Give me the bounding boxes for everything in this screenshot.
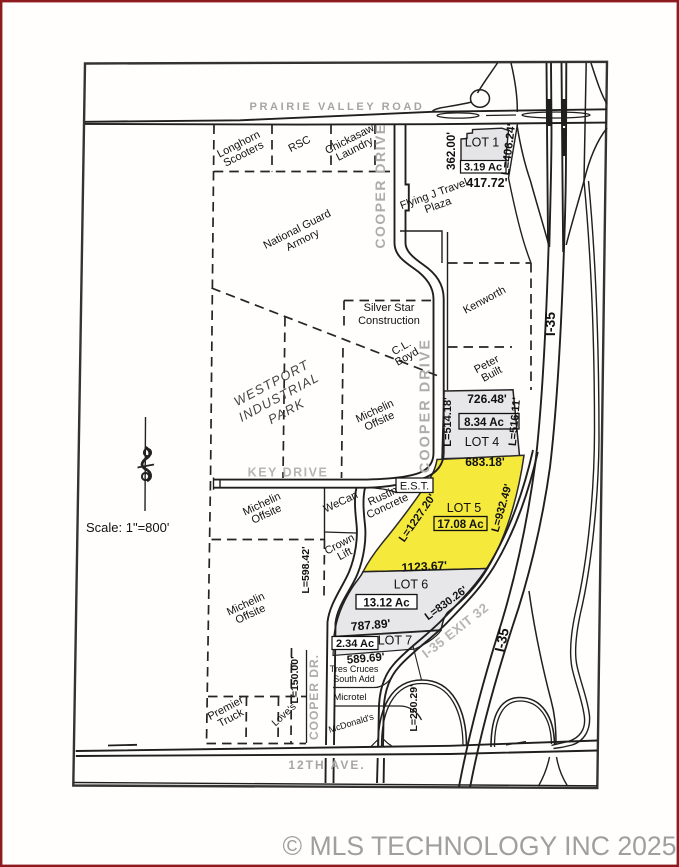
- svg-text:LOT 6: LOT 6: [394, 578, 429, 592]
- svg-text:PRAIRIE VALLEY ROAD: PRAIRIE VALLEY ROAD: [250, 101, 425, 113]
- svg-text:L=250.29': L=250.29': [408, 684, 420, 731]
- svg-text:12TH AVE.: 12TH AVE.: [288, 758, 365, 772]
- svg-text:417.72': 417.72': [466, 176, 507, 190]
- svg-text:362.00': 362.00': [446, 132, 458, 170]
- svg-text:8.34 Ac: 8.34 Ac: [464, 417, 504, 429]
- svg-text:Silver Star: Silver Star: [364, 302, 415, 314]
- svg-text:LOT 5: LOT 5: [447, 501, 482, 515]
- svg-text:LOT 1: LOT 1: [465, 136, 500, 150]
- svg-text:683.18': 683.18': [465, 455, 505, 469]
- svg-text:Construction: Construction: [358, 315, 420, 327]
- svg-text:South Add: South Add: [333, 674, 375, 684]
- svg-text:726.48': 726.48': [467, 392, 507, 406]
- svg-text:COOPER DRIVE: COOPER DRIVE: [418, 338, 434, 473]
- svg-text:L=514.18': L=514.18': [442, 397, 454, 447]
- svg-text:I-35: I-35: [542, 312, 558, 336]
- svg-text:E.S.T.: E.S.T.: [400, 481, 429, 493]
- svg-text:L=598.42': L=598.42': [300, 546, 312, 593]
- svg-text:LOT 7: LOT 7: [378, 634, 413, 648]
- svg-text:17.08 Ac: 17.08 Ac: [437, 519, 484, 531]
- svg-text:KEY DRIVE: KEY DRIVE: [248, 466, 329, 480]
- svg-text:2.34 Ac: 2.34 Ac: [336, 638, 374, 650]
- svg-text:COOPER DRIVE: COOPER DRIVE: [372, 123, 388, 248]
- svg-text:Scale: 1"=800': Scale: 1"=800': [86, 520, 169, 535]
- svg-text:L=150.00': L=150.00': [289, 656, 301, 703]
- svg-text:© MLS TECHNOLOGY INC 2025: © MLS TECHNOLOGY INC 2025: [282, 831, 676, 861]
- svg-text:1123.67': 1123.67': [401, 558, 447, 574]
- svg-text:COOPER DR.: COOPER DR.: [307, 654, 321, 740]
- svg-text:Microtel: Microtel: [333, 692, 366, 703]
- svg-text:3.19 Ac: 3.19 Ac: [464, 162, 502, 174]
- svg-text:LOT 4: LOT 4: [465, 435, 500, 449]
- svg-text:13.12 Ac: 13.12 Ac: [363, 597, 410, 609]
